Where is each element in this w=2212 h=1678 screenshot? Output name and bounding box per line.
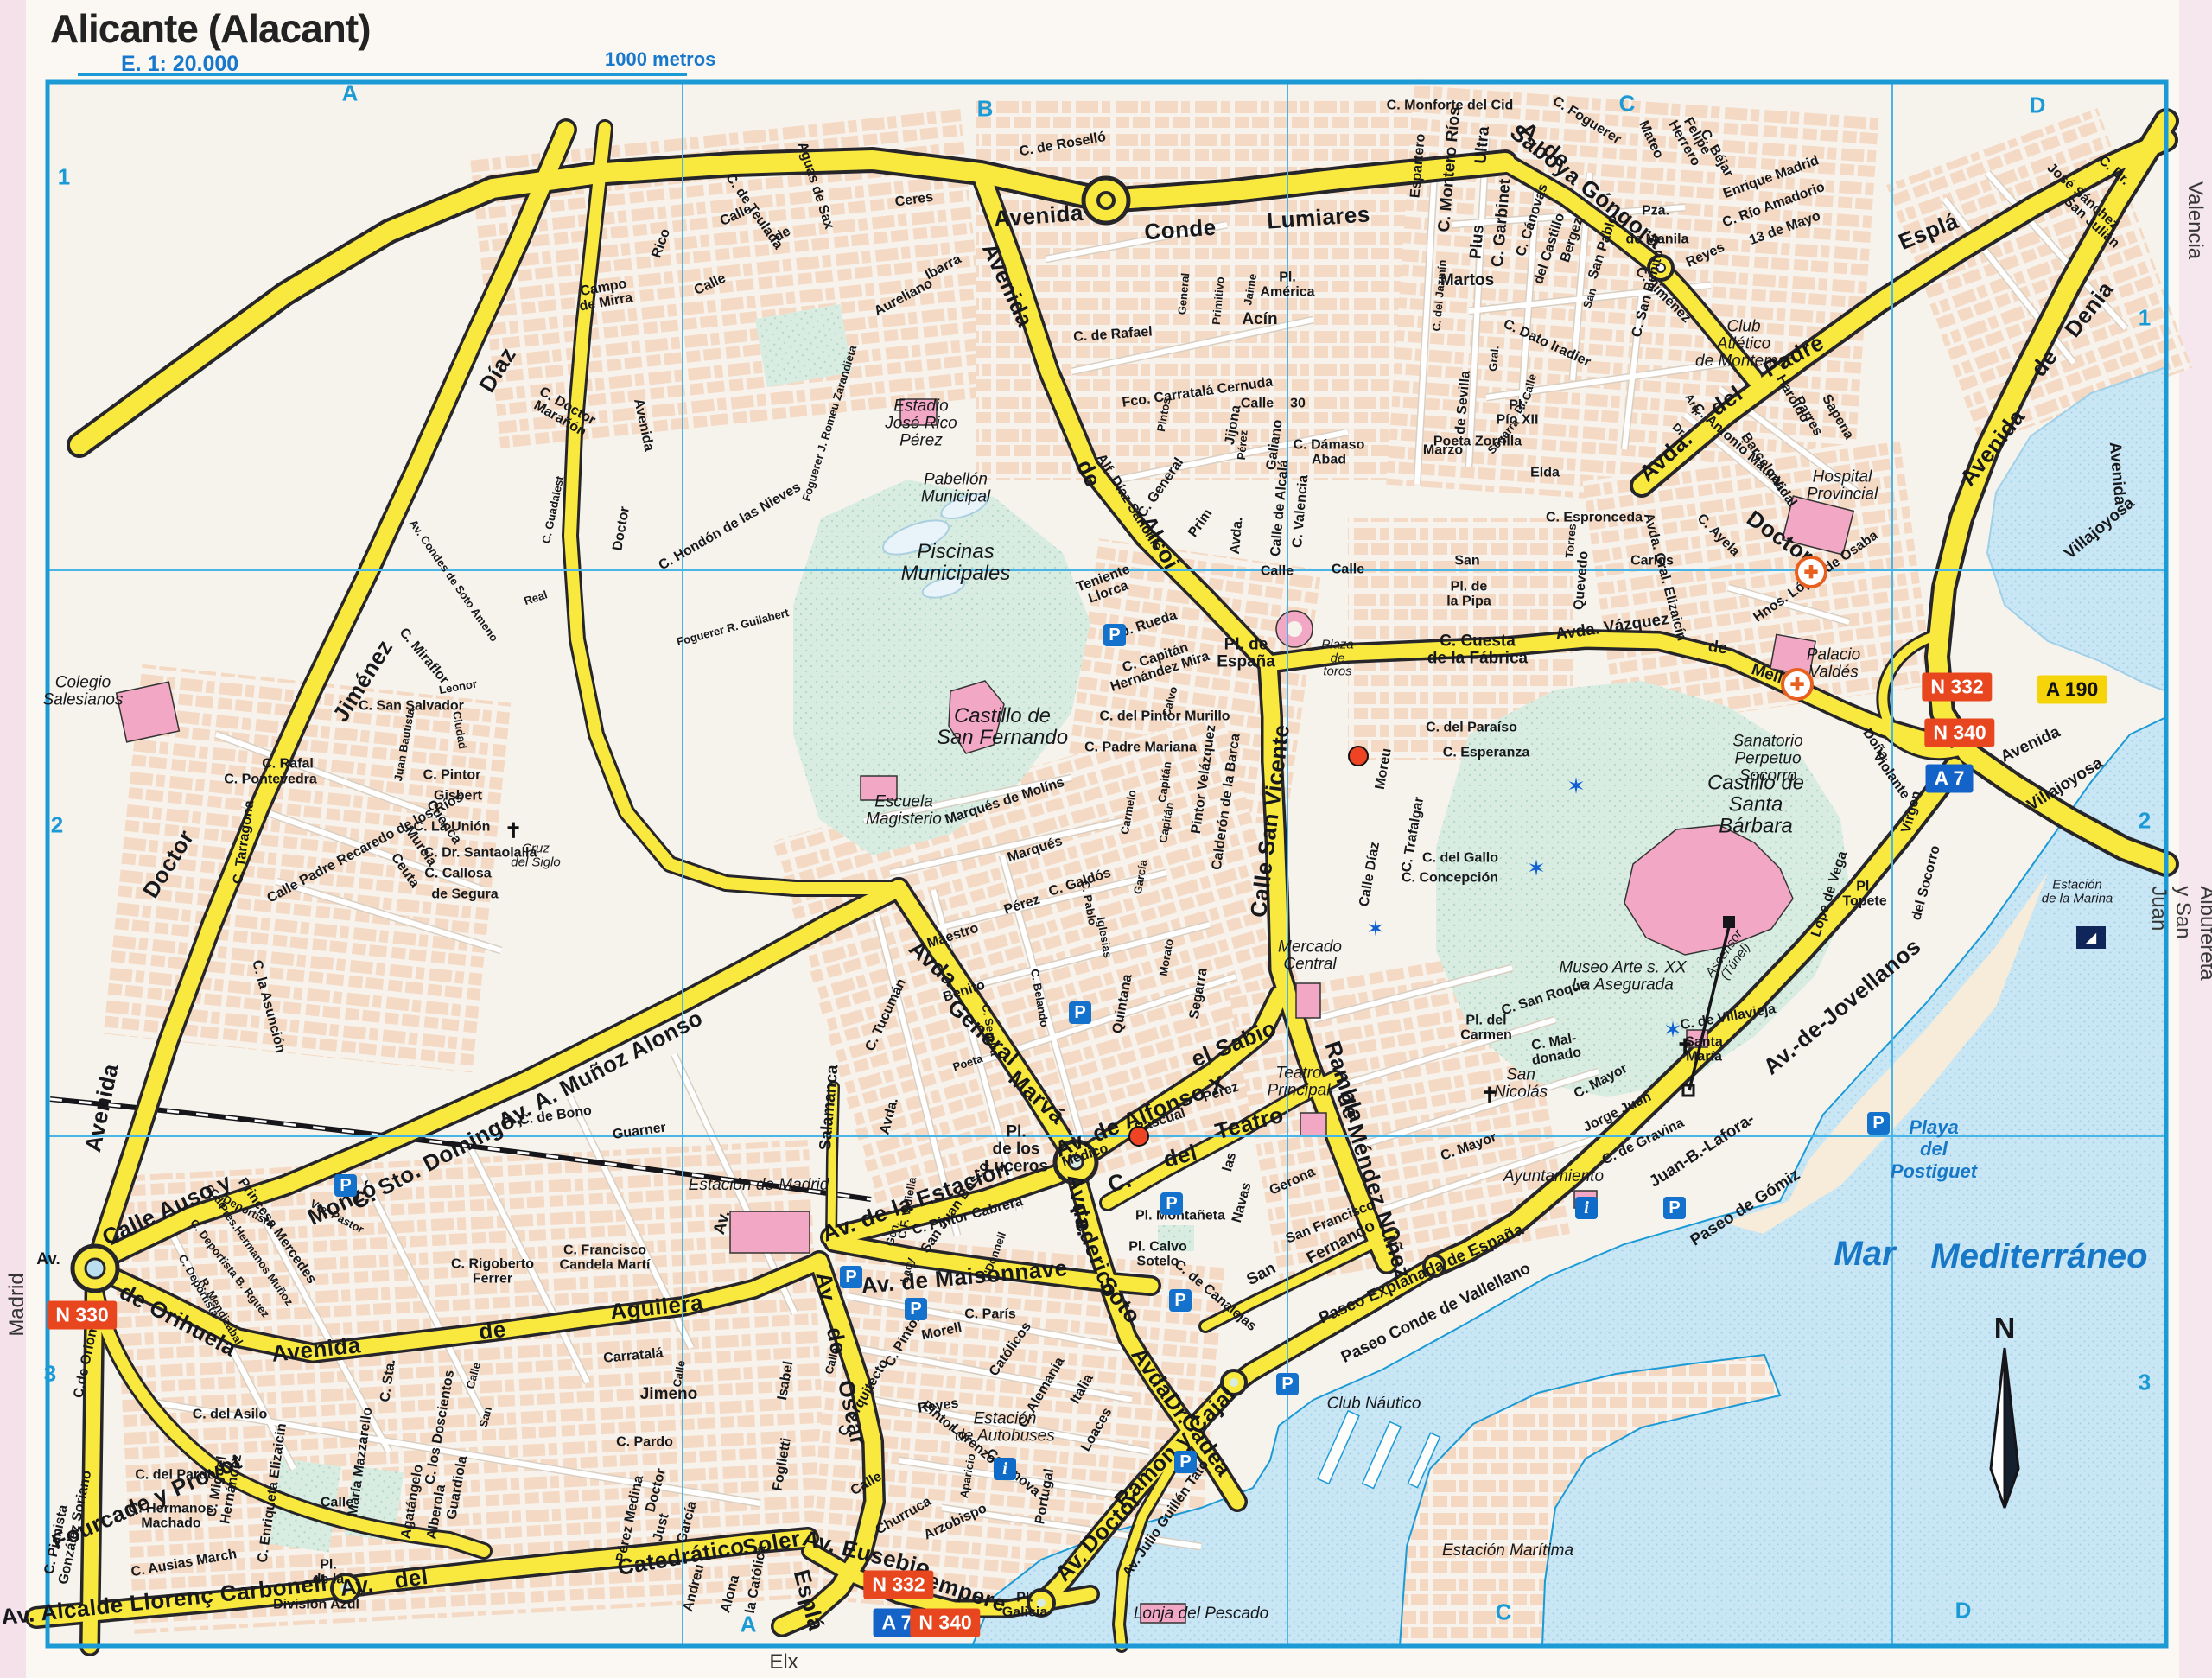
hospital-icon: ✚ [1795,556,1827,588]
grid-label-right: 3 [2139,1370,2151,1396]
dot-icon [1128,1126,1149,1147]
info-icon: i [994,1458,1016,1480]
church-icon: ✝ [1481,1084,1498,1109]
parking-icon: P [334,1174,357,1197]
church-icon: ✝ [505,819,522,844]
edge-label-playas: Playas de Albufereta y San Juan [2146,886,2212,980]
parking-icon: P [905,1298,927,1320]
bullring-center [1287,621,1302,637]
road-shield-n340: N 340 [910,1609,980,1637]
grid-label-bottom: D [1955,1598,1972,1624]
map-artwork [0,0,2212,1678]
grid-label-left: 2 [51,812,63,839]
parking-icon: P [1103,624,1126,646]
parking-icon: P [1663,1197,1686,1219]
dot-icon [1348,746,1369,766]
road-shield-n340: N 340 [1924,719,1994,747]
grid-label-top: B [977,96,994,123]
parking-icon: P [1160,1192,1183,1215]
road-shield-a190: A 190 [2037,676,2107,704]
star-icon: ✶ [1527,855,1546,882]
parking-icon: P [840,1266,862,1288]
parking-icon: P [1069,1001,1091,1024]
grid-label-right: 1 [2139,305,2151,332]
grid-label-right: 2 [2139,808,2151,835]
grid-label-bottom: A [741,1611,757,1638]
road-shield-n330: N 330 [47,1301,117,1330]
grid-label-top: A [342,80,359,107]
info-icon: i [1575,1197,1598,1219]
parking-icon: P [1169,1289,1192,1312]
parking-icon: P [1867,1112,1890,1135]
map-page: { "title":"Alicante (Alacant)", "scale":… [0,0,2212,1678]
road-shield-a7: A 7 [1926,765,1974,793]
grid-label-top: C [1619,91,1636,118]
grid-label-left: 1 [58,164,70,191]
grid-label-top: D [2030,92,2046,119]
grid-label-bottom: C [1496,1599,1512,1626]
edge-label-elx: Elx [769,1650,798,1675]
star-icon: ✶ [1567,773,1586,800]
map-canvas: Aguas de SaxCalledeCeresC. de TeuladaCam… [0,0,2212,1678]
edge-label-valencia: Valencia [2183,181,2207,259]
star-icon: ✶ [1366,916,1385,943]
road-shield-n332: N 332 [1922,673,1992,702]
edge-label-madrid: Madrid [5,1273,29,1336]
parking-icon: P [1174,1451,1197,1473]
star-icon: ✶ [1663,1017,1682,1044]
road-shield-n332: N 332 [863,1571,933,1599]
marina-icon: ◢ [2076,926,2106,949]
hospital-icon: ✚ [1781,668,1814,701]
parking-icon: P [1276,1373,1299,1395]
grid-label-left: 3 [44,1361,56,1388]
